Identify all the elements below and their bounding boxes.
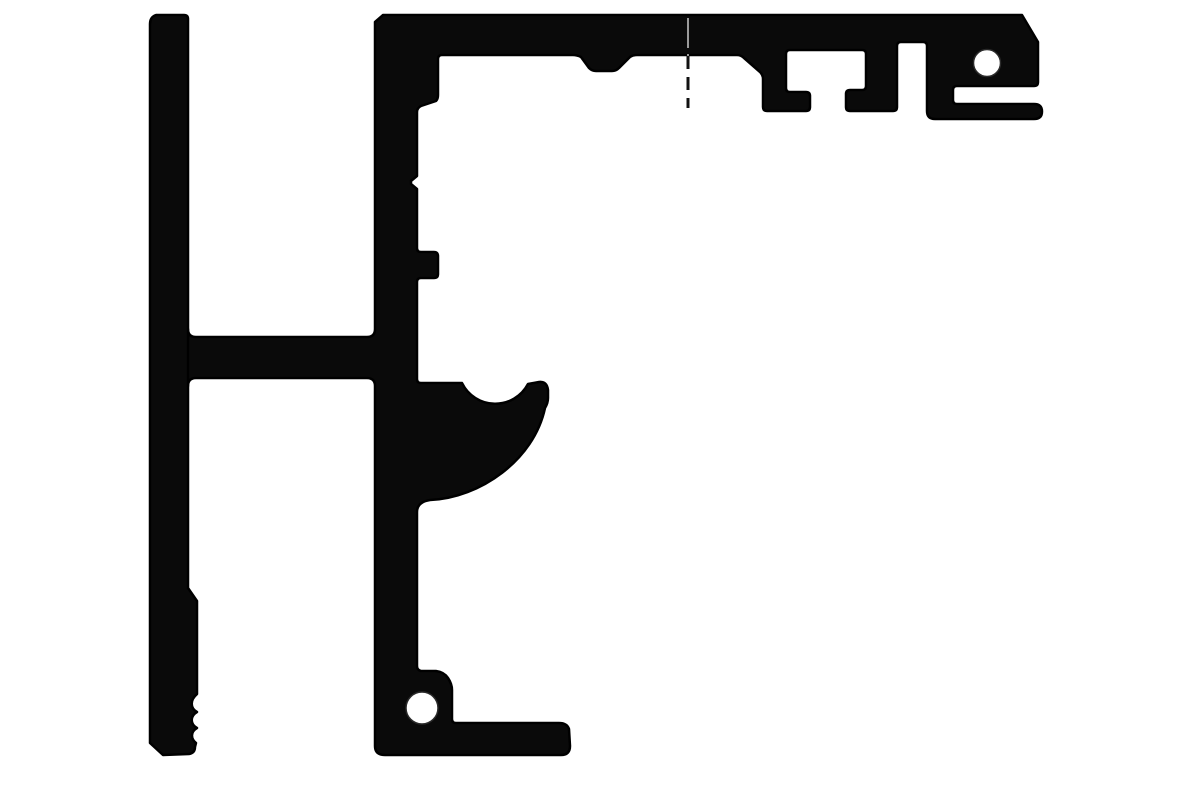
technical-drawing-stage bbox=[0, 0, 1200, 800]
screw-hole-top-right bbox=[974, 50, 1001, 77]
main-profile-shape bbox=[180, 15, 1042, 755]
screw-hole-bottom bbox=[406, 692, 438, 724]
left-bar-shape bbox=[150, 15, 197, 755]
profile-cross-section-drawing bbox=[0, 0, 1200, 800]
